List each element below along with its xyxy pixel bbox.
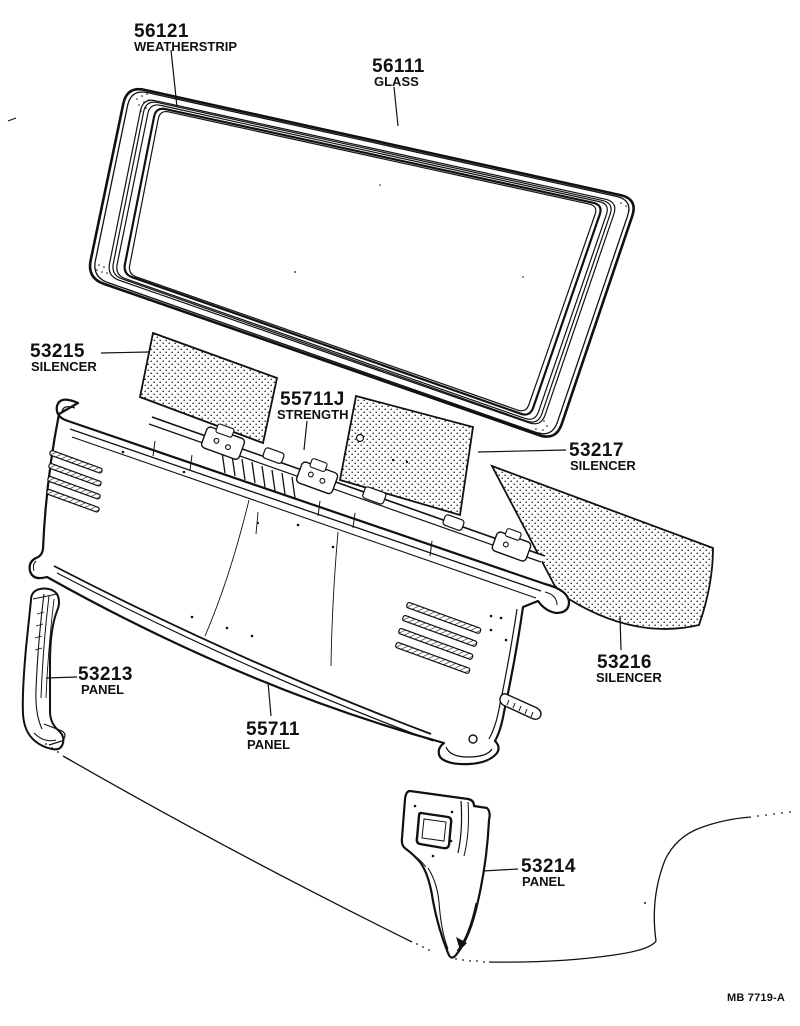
label-56111-name: GLASS (374, 74, 419, 89)
drawing-code: MB 7719-A (727, 992, 785, 1004)
label-55711-name: PANEL (247, 737, 290, 752)
panel-53214-drawing (402, 791, 490, 958)
parts-diagram-sheet: 56121 WEATHERSTRIP 56111 GLASS 53215 SIL… (0, 0, 800, 1026)
panel-53213-drawing (23, 589, 65, 750)
cowl-windshield-parts-diagram: 56121 WEATHERSTRIP 56111 GLASS 53215 SIL… (0, 0, 800, 1026)
leader-53215 (101, 352, 149, 353)
label-53217-name: SILENCER (570, 458, 636, 473)
label-56121-name: WEATHERSTRIP (134, 39, 237, 54)
cowl-panel-55711-drawing (30, 400, 569, 764)
label-53213-name: PANEL (81, 682, 124, 697)
leader-53214 (483, 869, 518, 871)
label-53214-name: PANEL (522, 874, 565, 889)
label-53216-name: SILENCER (596, 670, 662, 685)
leader-55711 (268, 682, 271, 716)
leader-53217 (478, 450, 566, 452)
leader-55711j (304, 421, 307, 450)
label-55711j-name: STRENGTH (277, 407, 349, 422)
leader-56111 (394, 87, 398, 126)
label-53215-name: SILENCER (31, 359, 97, 374)
margin-speck (8, 118, 16, 121)
sill-strip-drawing (500, 694, 541, 720)
